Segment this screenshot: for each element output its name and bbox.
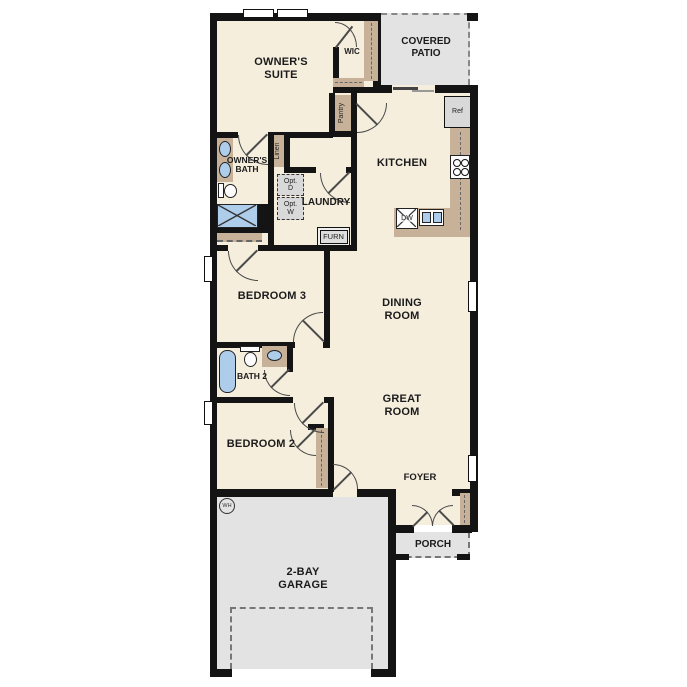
cooktop [450, 155, 470, 179]
counter-dash-line [460, 132, 461, 230]
wall [210, 397, 293, 403]
shower [217, 204, 258, 228]
window [243, 9, 274, 18]
kitchen-sink [419, 209, 444, 226]
room-label-laundry: LAUNDRY [296, 197, 356, 209]
water-heater: WH [219, 498, 235, 514]
wall [210, 245, 228, 251]
toilet [244, 352, 257, 367]
bedroom2-closet [316, 428, 328, 488]
optional-dryer-label: Opt. D [283, 178, 299, 193]
window [277, 9, 308, 18]
closet-label-pantry: Pantry [338, 93, 348, 133]
wic-wall-shelf [333, 78, 364, 87]
wall [284, 167, 316, 173]
dishwasher: DW [396, 208, 418, 229]
water-heater-label: WH [222, 503, 231, 509]
window [204, 401, 213, 425]
wall [210, 669, 232, 677]
wall [324, 251, 330, 342]
dishwasher-label: DW [397, 215, 417, 222]
room-label-dining-room: DINING ROOM [372, 297, 432, 322]
window [468, 281, 477, 312]
toilet [224, 184, 237, 198]
sliding-door [412, 90, 434, 92]
entry-side-wall [460, 493, 470, 525]
room-label-porch: PORCH [403, 539, 463, 551]
furnace: FURN [317, 227, 350, 246]
wall [457, 554, 470, 560]
room-label-owners-bath: OWNER'S BATH [217, 156, 277, 175]
wall [210, 489, 333, 497]
wall [388, 489, 396, 677]
wall [396, 554, 409, 560]
wall [467, 13, 478, 21]
wall [388, 532, 396, 558]
wall [323, 342, 330, 348]
window [204, 256, 213, 282]
closet-label-linen: Linen [274, 133, 284, 169]
garage-door [230, 607, 373, 669]
room-label-garage: 2-BAY GARAGE [268, 566, 338, 591]
room-label-bath2: BATH 2 [232, 372, 272, 381]
furnace-label: FURN [323, 233, 344, 241]
wall [435, 85, 472, 93]
window [468, 455, 477, 482]
room-label-owners-suite: OWNER'S SUITE [236, 56, 326, 81]
room-label-covered-patio: COVERED PATIO [391, 36, 461, 59]
room-label-bedroom3: BEDROOM 3 [227, 290, 317, 303]
room-label-great-room: GREAT ROOM [372, 393, 432, 418]
room-label-bedroom2: BEDROOM 2 [216, 438, 306, 451]
floor-plan: Ref DW Opt. D Opt. W FURN WH OWNER'S SUI… [0, 0, 687, 687]
room-label-foyer: FOYER [390, 473, 450, 484]
shelf [217, 233, 262, 242]
sink [267, 350, 282, 361]
refrigerator: Ref [444, 96, 471, 128]
wall [351, 137, 357, 247]
room-label-wic: WIC [337, 48, 367, 57]
wall [371, 669, 396, 677]
refrigerator-label: Ref [452, 108, 463, 115]
optional-dryer: Opt. D [277, 174, 304, 196]
room-label-kitchen: KITCHEN [362, 157, 442, 170]
wall [452, 525, 472, 533]
